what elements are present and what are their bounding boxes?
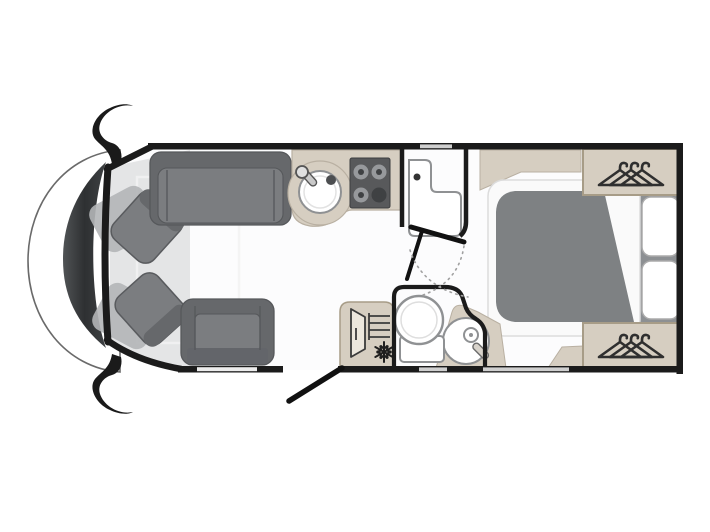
- pillow-top: [642, 197, 679, 256]
- fridge-door: [351, 309, 365, 357]
- hob-icon: [350, 158, 390, 208]
- toilet-icon: [395, 296, 444, 362]
- sofa-bench: [150, 152, 291, 225]
- window-bottom-lounge: [197, 367, 257, 371]
- window-bottom-bathroom: [419, 367, 447, 371]
- window-top-washroom: [420, 144, 452, 148]
- a-pillar-frame: [105, 167, 108, 342]
- wall-top: [148, 143, 683, 150]
- window-bottom-bedroom: [483, 367, 569, 371]
- entry-door: [289, 368, 342, 401]
- wardrobe-top: [583, 149, 678, 195]
- vanity-drain: [414, 174, 421, 181]
- floorplan-stage: [0, 0, 710, 532]
- wall-right: [677, 143, 684, 374]
- floorplan-canvas: [0, 0, 710, 532]
- travel-seat: [181, 299, 274, 365]
- pillow-bottom: [642, 261, 679, 319]
- wardrobe-bottom: [583, 323, 678, 368]
